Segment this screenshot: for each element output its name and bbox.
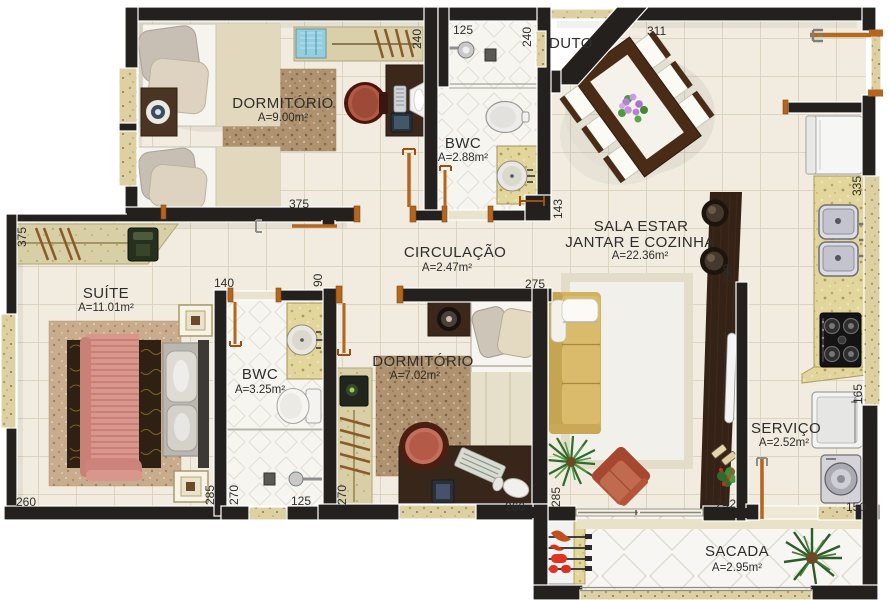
svg-text:BWC: BWC — [242, 366, 278, 383]
svg-text:A=2.52m²: A=2.52m² — [759, 437, 809, 449]
svg-text:125: 125 — [453, 23, 473, 37]
svg-text:SALA ESTAR: SALA ESTAR — [594, 218, 689, 235]
svg-text:165: 165 — [851, 384, 865, 404]
svg-text:A=11.01m²: A=11.01m² — [78, 302, 134, 314]
svg-text:JANTAR E COZINHA: JANTAR E COZINHA — [565, 234, 714, 251]
svg-text:90: 90 — [311, 273, 325, 287]
svg-text:242: 242 — [716, 497, 736, 511]
svg-text:A=7.02m²: A=7.02m² — [390, 370, 440, 382]
svg-text:A=22.36m²: A=22.36m² — [612, 250, 669, 262]
svg-text:375: 375 — [289, 197, 309, 211]
svg-text:SERVIÇO: SERVIÇO — [751, 420, 821, 437]
svg-text:SUÍTE: SUÍTE — [83, 285, 129, 302]
svg-text:BWC: BWC — [445, 135, 481, 152]
svg-text:DUTO: DUTO — [549, 35, 593, 52]
svg-text:270: 270 — [335, 485, 349, 505]
svg-text:A=2.95m²: A=2.95m² — [712, 562, 762, 574]
svg-text:270: 270 — [227, 485, 241, 505]
svg-text:125: 125 — [291, 494, 311, 508]
svg-text:A=9.00m²: A=9.00m² — [258, 112, 308, 124]
svg-text:SACADA: SACADA — [705, 543, 769, 560]
svg-text:335: 335 — [850, 176, 864, 196]
svg-text:CIRCULAÇÃO: CIRCULAÇÃO — [404, 244, 506, 261]
svg-text:A=2.47m²: A=2.47m² — [422, 262, 472, 274]
svg-text:DORMITÓRIO: DORMITÓRIO — [232, 95, 334, 112]
svg-text:275: 275 — [525, 277, 545, 291]
svg-text:DORMITÓRIO: DORMITÓRIO — [372, 353, 474, 370]
svg-text:240: 240 — [520, 27, 534, 47]
svg-text:260: 260 — [505, 500, 525, 514]
svg-text:150: 150 — [846, 500, 866, 514]
svg-text:143: 143 — [551, 199, 565, 219]
svg-text:260: 260 — [16, 495, 36, 509]
svg-text:311: 311 — [647, 24, 666, 38]
svg-text:290: 290 — [720, 263, 735, 284]
svg-text:285: 285 — [549, 487, 563, 507]
svg-text:140: 140 — [214, 276, 234, 290]
svg-text:375: 375 — [15, 227, 29, 247]
svg-text:240: 240 — [410, 29, 424, 49]
svg-text:A=3.25m²: A=3.25m² — [235, 384, 285, 396]
svg-text:285: 285 — [203, 485, 217, 505]
svg-text:A=2.88m²: A=2.88m² — [438, 152, 488, 164]
